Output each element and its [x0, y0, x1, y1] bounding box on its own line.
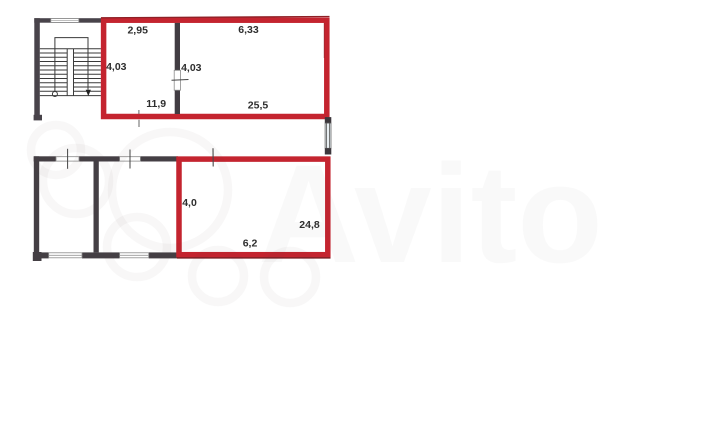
- svg-text:4,03: 4,03: [106, 61, 127, 73]
- svg-text:4,03: 4,03: [181, 62, 202, 74]
- svg-text:6,2: 6,2: [243, 238, 258, 250]
- svg-text:11,9: 11,9: [146, 98, 166, 110]
- svg-text:2,95: 2,95: [127, 24, 148, 36]
- svg-text:6,33: 6,33: [238, 24, 259, 36]
- svg-text:25,5: 25,5: [248, 100, 269, 112]
- svg-text:Avito: Avito: [258, 135, 603, 292]
- svg-text:4,0: 4,0: [182, 197, 197, 209]
